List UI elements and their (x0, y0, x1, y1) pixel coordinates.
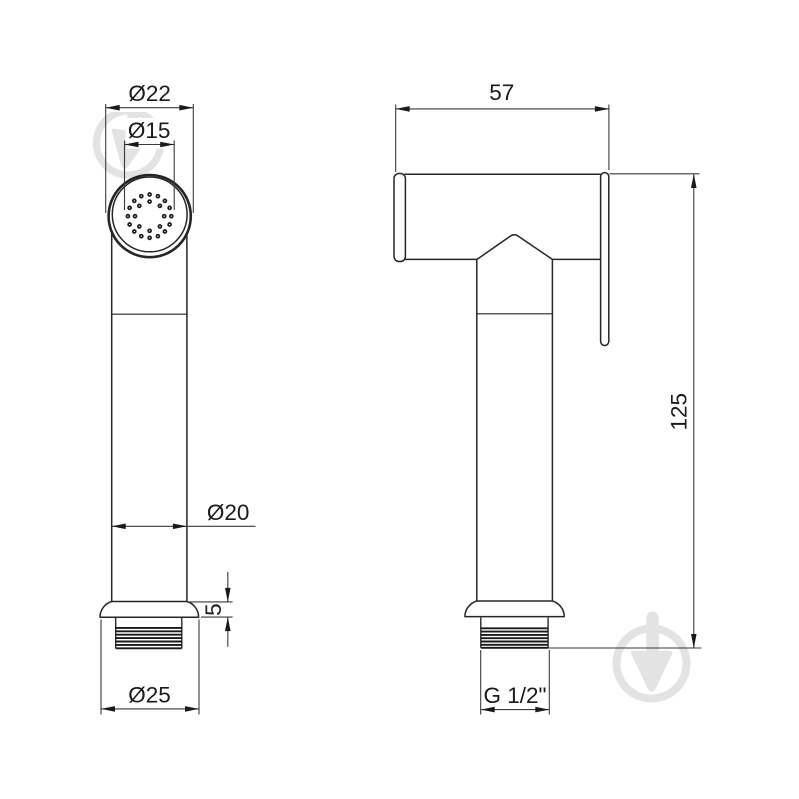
svg-text:125: 125 (666, 393, 691, 431)
svg-text:Ø15: Ø15 (128, 118, 171, 143)
svg-text:Ø20: Ø20 (207, 500, 250, 525)
svg-text:Ø22: Ø22 (128, 81, 171, 106)
svg-text:Ø25: Ø25 (128, 683, 171, 708)
svg-text:G 1/2": G 1/2" (483, 683, 546, 708)
svg-text:5: 5 (201, 603, 226, 616)
svg-text:57: 57 (489, 80, 514, 105)
